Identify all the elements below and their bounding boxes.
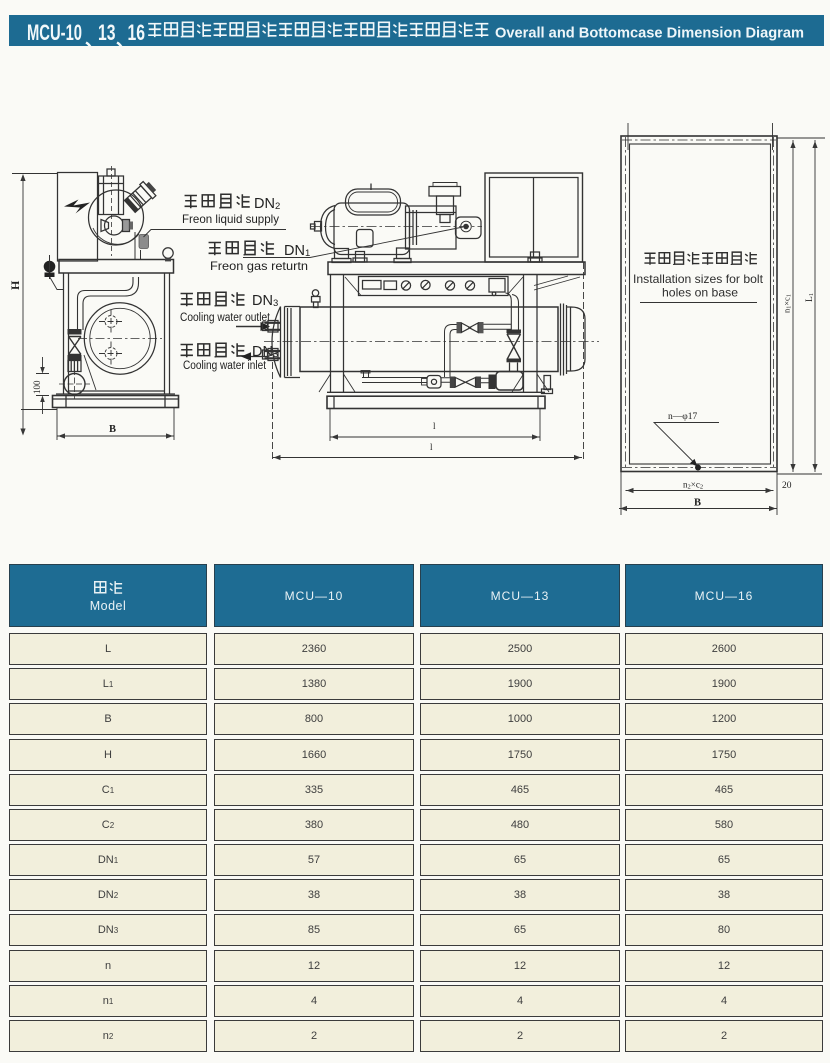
svg-text:n—φ17: n—φ17 <box>668 412 697 422</box>
svg-text:holes on base: holes on base <box>662 286 738 300</box>
svg-text:20: 20 <box>782 481 792 491</box>
svg-text:l: l <box>433 421 436 431</box>
svg-text:L1: L1 <box>805 293 815 302</box>
svg-text:Freon gas returtn: Freon gas returtn <box>210 259 308 273</box>
svg-text:Cooling water outlet: Cooling water outlet <box>180 312 271 324</box>
svg-text:DN1: DN1 <box>284 243 310 259</box>
svg-text:B: B <box>109 424 116 435</box>
svg-text:DN2: DN2 <box>254 196 280 212</box>
svg-text:n2×c2: n2×c2 <box>683 480 703 491</box>
svg-text:H: H <box>8 280 22 290</box>
svg-text:Installation sizes for bolt: Installation sizes for bolt <box>633 272 764 286</box>
svg-text:Cooling water inlet: Cooling water inlet <box>183 360 267 372</box>
svg-text:n1×c1: n1×c1 <box>782 294 793 313</box>
svg-text:Freon liquid supply: Freon liquid supply <box>182 212 279 226</box>
svg-text:l: l <box>430 442 433 452</box>
svg-text:100: 100 <box>32 380 42 394</box>
svg-text:DN3: DN3 <box>252 293 278 309</box>
svg-text:B: B <box>694 498 701 509</box>
